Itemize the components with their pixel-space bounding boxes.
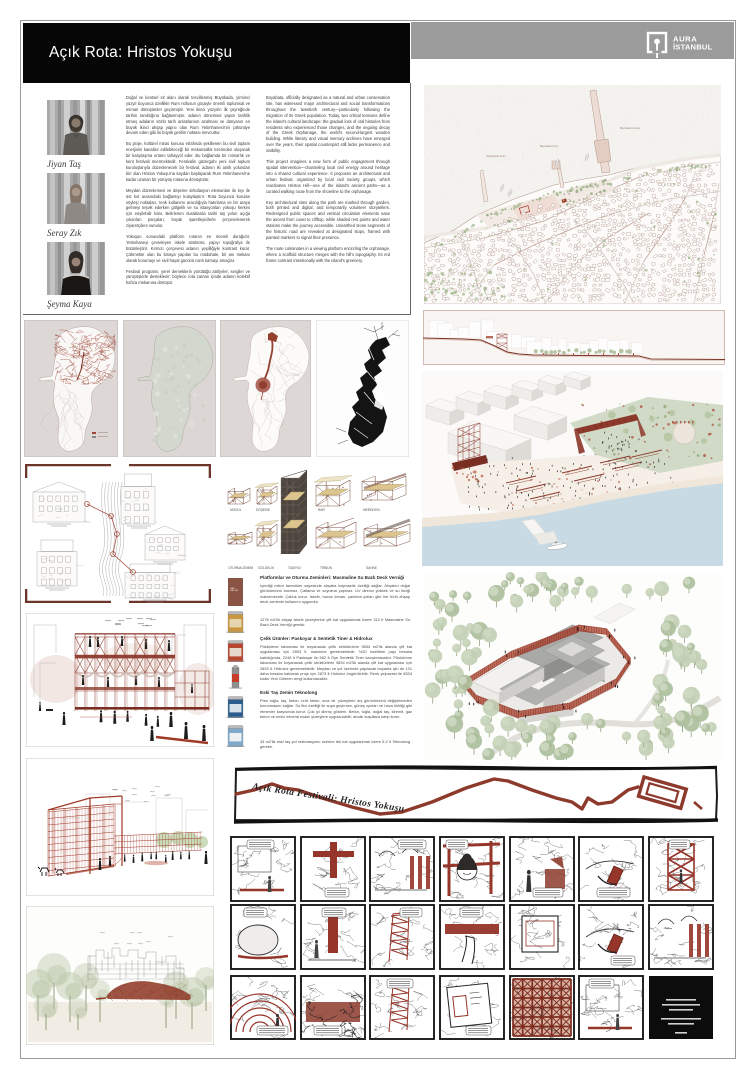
svg-text:Büyükada Limanı: Büyükada Limanı: [620, 126, 640, 130]
svg-text:Büyükada Ferry: Büyükada Ferry: [540, 144, 559, 148]
svg-text:İSTANBUL: İSTANBUL: [673, 43, 713, 52]
svg-text:Heybeliada Ferry: Heybeliada Ferry: [486, 154, 506, 158]
